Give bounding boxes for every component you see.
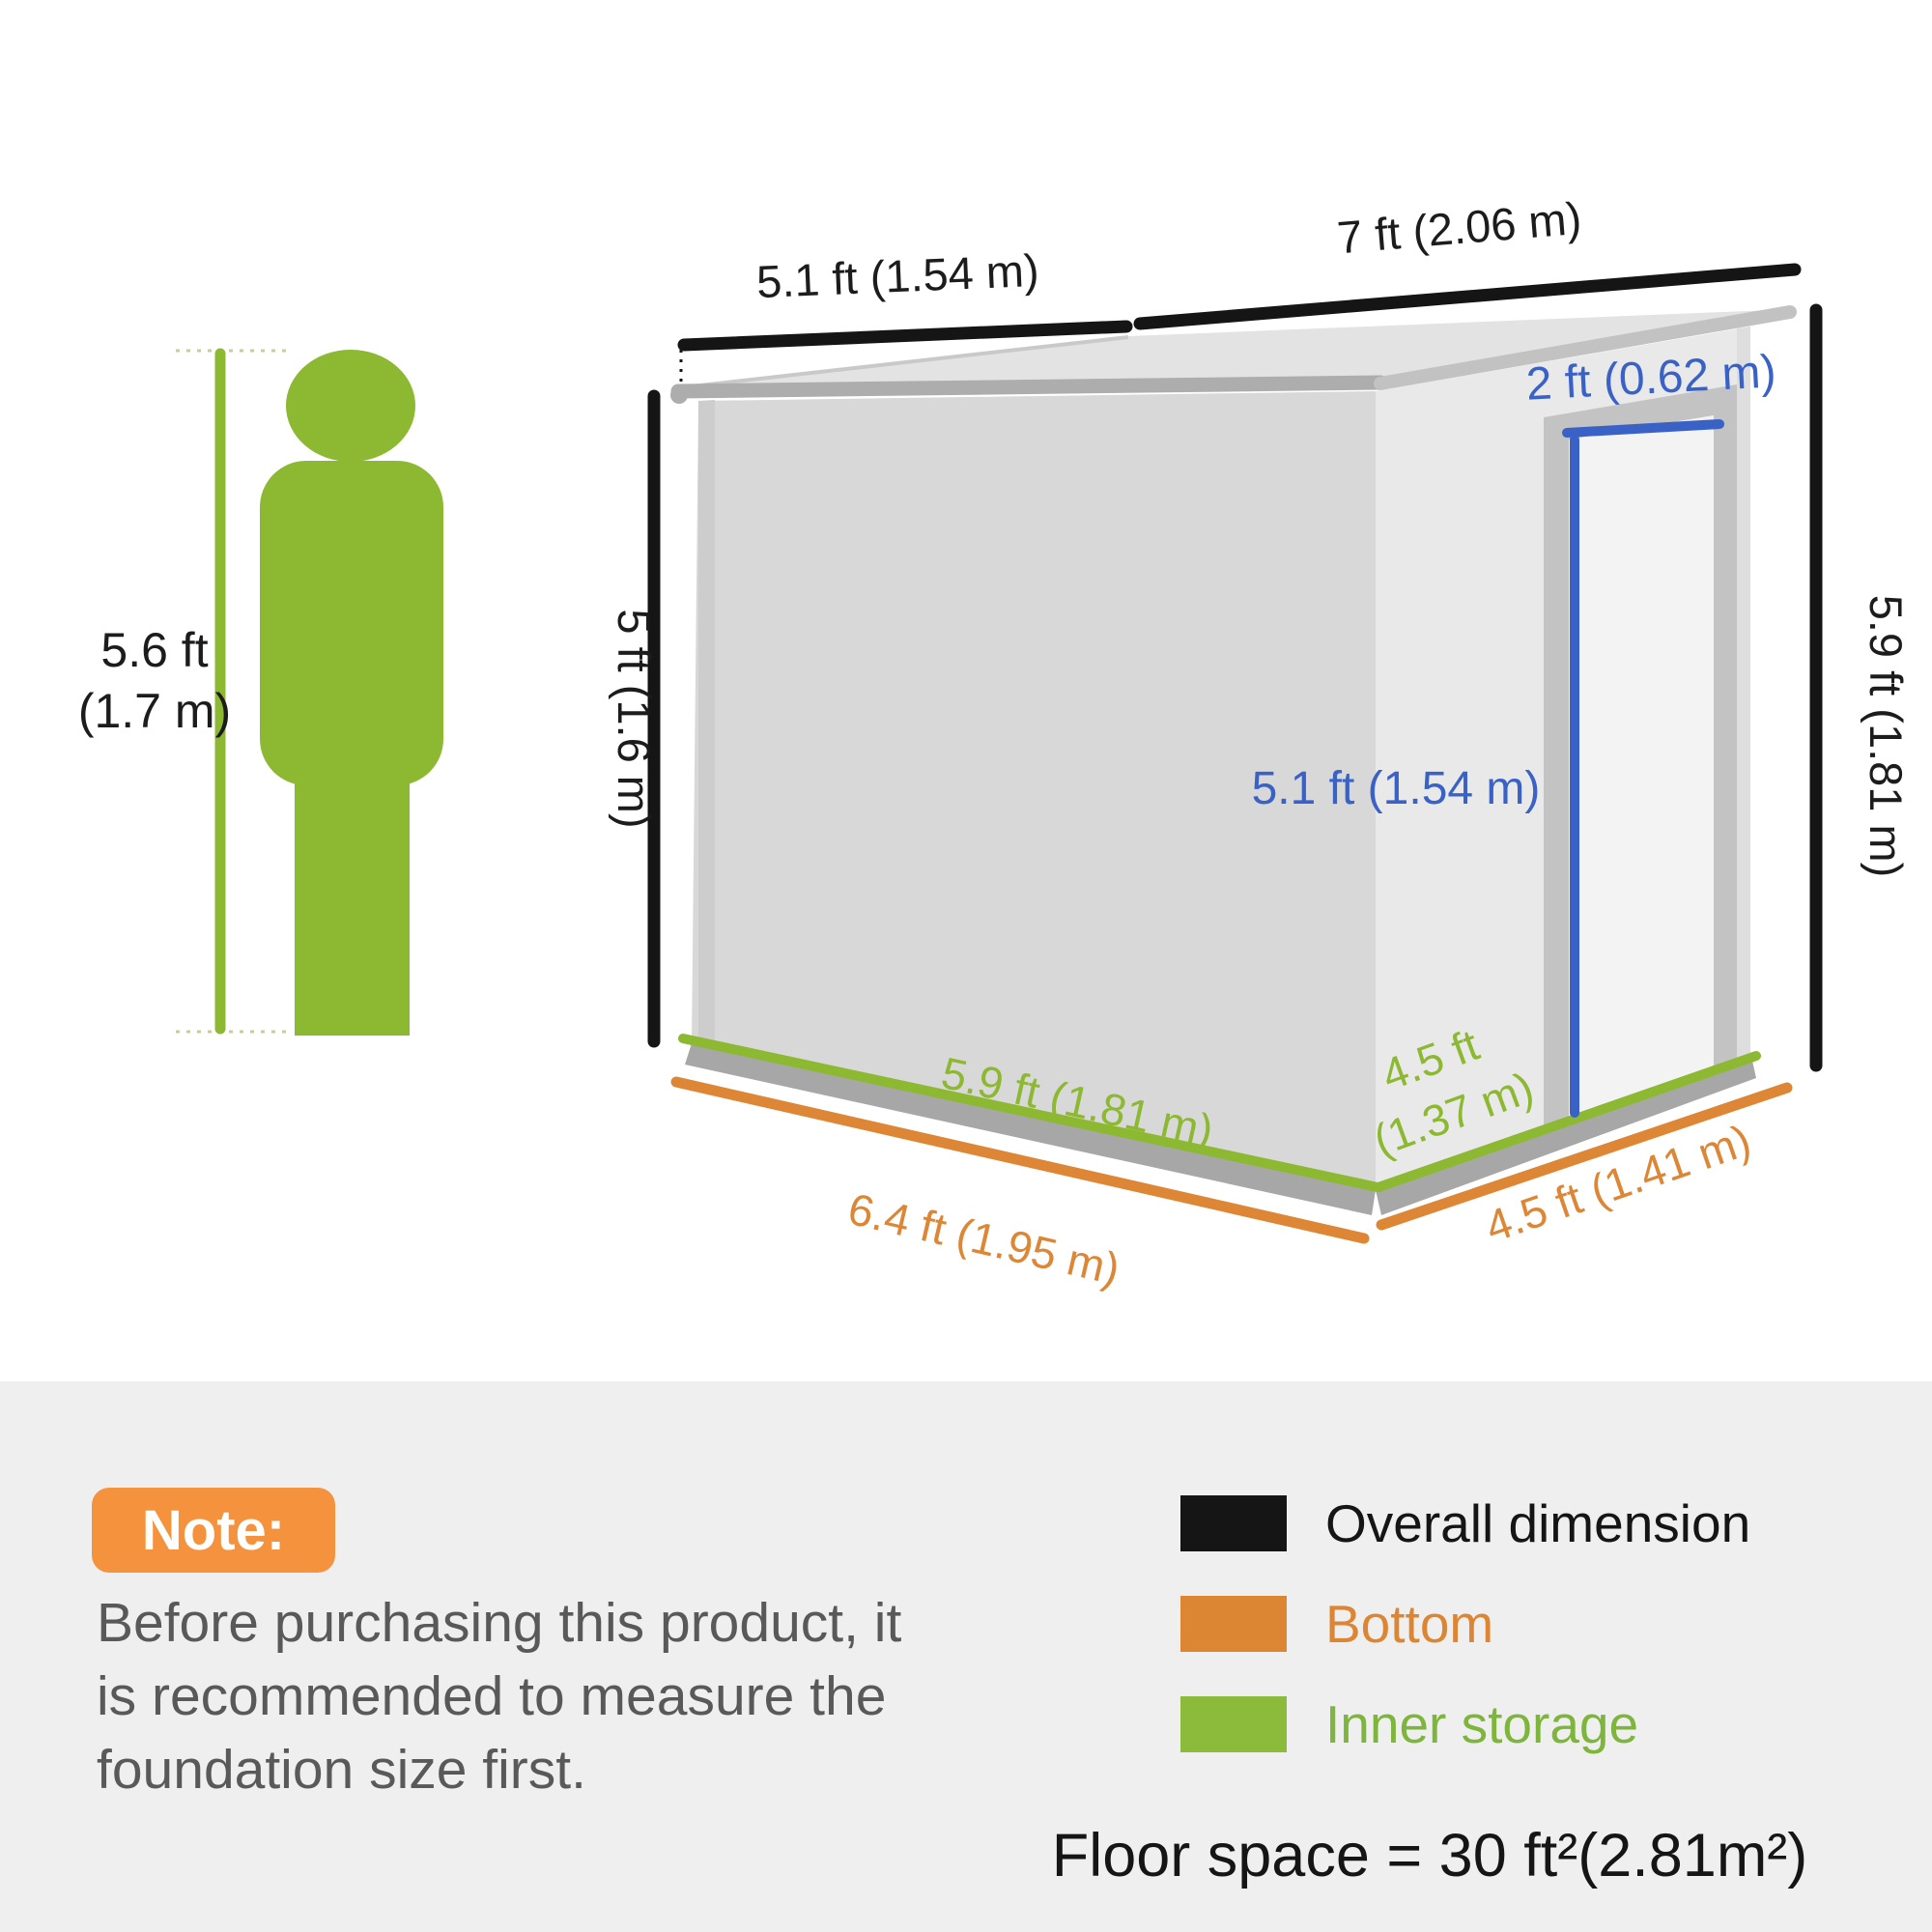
door-height-label: 5.1 ft (1.54 m) bbox=[1252, 763, 1541, 814]
right-wall-outer-edge bbox=[1737, 327, 1750, 1064]
shed-dimension-diagram: 5.6 ft (1.7 m) bbox=[0, 0, 1932, 1932]
note-line: is recommended to measure the bbox=[97, 1660, 901, 1733]
note-badge: Note: bbox=[92, 1488, 335, 1573]
shed-body bbox=[670, 309, 1794, 1215]
floor-space-text: Floor space = 30 ft²(2.81m²) bbox=[966, 1821, 1893, 1890]
roof-front-eave bbox=[678, 383, 1380, 391]
legend-label-bottom: Bottom bbox=[1325, 1596, 1493, 1652]
person-torso bbox=[260, 461, 443, 785]
bottom-front-label: 6.4 ft (1.95 m) bbox=[843, 1183, 1124, 1294]
roof-left-dim-label: 5.1 ft (1.54 m) bbox=[755, 244, 1040, 307]
legend-label-inner-storage: Inner storage bbox=[1325, 1696, 1638, 1752]
person-legs bbox=[295, 768, 410, 1036]
roof-left-dim-line bbox=[684, 327, 1126, 345]
info-panel: Note: Before purchasing this product, it… bbox=[0, 1381, 1932, 1932]
person-figure: 5.6 ft (1.7 m) bbox=[78, 350, 443, 1036]
legend-swatch-bottom bbox=[1180, 1596, 1287, 1652]
left-height-dim-label: 5 ft (1.6 m) bbox=[609, 609, 660, 828]
legend-swatch-overall bbox=[1180, 1495, 1287, 1551]
front-wall-left-edge bbox=[698, 400, 715, 1047]
note-line: Before purchasing this product, it bbox=[97, 1586, 901, 1660]
shed-illustration: 5.6 ft (1.7 m) bbox=[0, 0, 1932, 1381]
right-height-dim-label: 5.9 ft (1.81 m) bbox=[1861, 595, 1912, 878]
legend-label-overall: Overall dimension bbox=[1325, 1495, 1750, 1551]
note-text: Before purchasing this product, it is re… bbox=[97, 1586, 901, 1806]
note-badge-label: Note: bbox=[142, 1498, 285, 1563]
door-panel bbox=[1569, 415, 1714, 1121]
person-height-label-line1: 5.6 ft bbox=[100, 623, 208, 677]
note-line: foundation size first. bbox=[97, 1733, 901, 1806]
person-height-label-line2: (1.7 m) bbox=[78, 684, 231, 738]
roof-right-dim-label: 7 ft (2.06 m) bbox=[1335, 192, 1583, 264]
person-head bbox=[286, 350, 415, 462]
legend-swatch-inner-storage bbox=[1180, 1696, 1287, 1752]
